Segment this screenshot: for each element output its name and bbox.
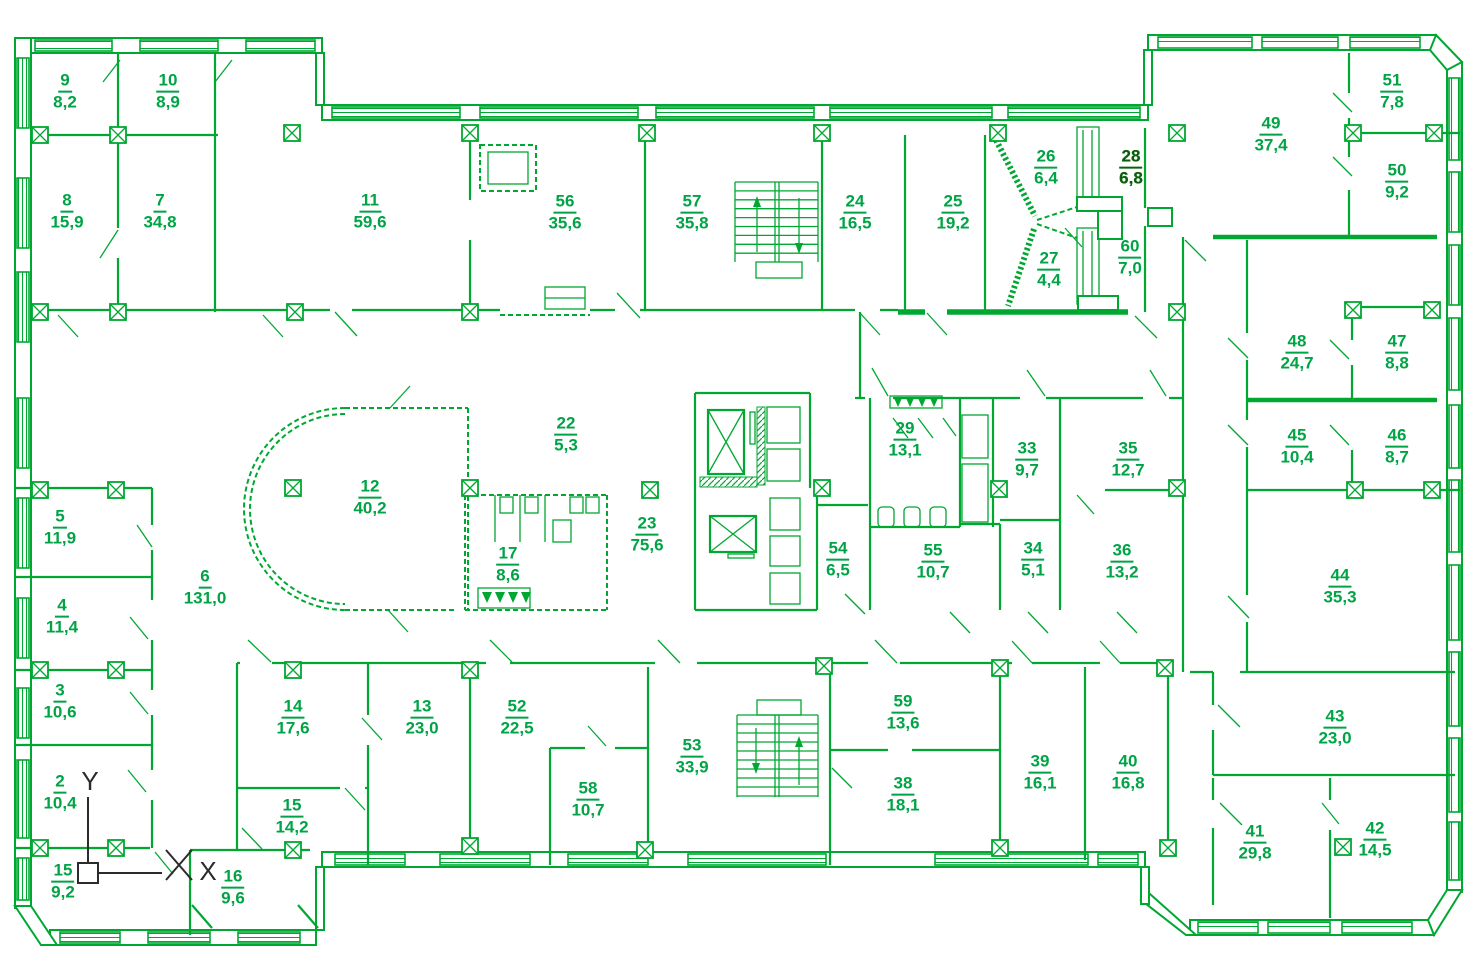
room-label-40: 4016,8 — [1111, 753, 1144, 794]
room-label-14: 1417,6 — [276, 698, 309, 739]
room-label-12: 1240,2 — [353, 478, 386, 519]
room-label-4: 411,4 — [46, 597, 78, 638]
room-label-42: 4214,5 — [1358, 820, 1391, 861]
room-label-6: 6131,0 — [184, 568, 227, 609]
room-label-24: 2416,5 — [838, 193, 871, 234]
room-label-15: 159,2 — [51, 862, 75, 903]
room-label-43: 4323,0 — [1318, 708, 1351, 749]
room-label-41: 4129,8 — [1238, 823, 1271, 864]
room-label-58: 5810,7 — [571, 780, 604, 821]
room-label-3: 310,6 — [43, 682, 76, 723]
room-label-11: 1159,6 — [353, 192, 386, 233]
room-label-54: 546,5 — [826, 540, 850, 581]
room-label-55: 5510,7 — [916, 542, 949, 583]
room-label-35: 3512,7 — [1111, 440, 1144, 481]
room-label-38: 3818,1 — [886, 775, 919, 816]
room-label-9: 98,2 — [53, 72, 77, 113]
room-label-10: 108,9 — [156, 72, 180, 113]
room-label-27: 274,4 — [1037, 250, 1061, 291]
room-label-48: 4824,7 — [1280, 333, 1313, 374]
room-label-29: 2913,1 — [888, 420, 921, 461]
room-label-13: 1323,0 — [405, 698, 438, 739]
room-label-22: 225,3 — [554, 415, 578, 456]
room-label-5: 511,9 — [44, 508, 76, 549]
room-label-44: 4435,3 — [1323, 567, 1356, 608]
room-label-23: 2375,6 — [630, 515, 663, 556]
room-label-56: 5635,6 — [548, 193, 581, 234]
room-label-36: 3613,2 — [1105, 542, 1138, 583]
room-label-34: 345,1 — [1021, 540, 1045, 581]
room-label-45: 4510,4 — [1280, 427, 1313, 468]
room-label-39: 3916,1 — [1023, 753, 1056, 794]
room-label-28: 286,8 — [1119, 148, 1143, 189]
room-label-7: 734,8 — [143, 192, 176, 233]
room-label-52: 5222,5 — [500, 698, 533, 739]
room-label-47: 478,8 — [1385, 333, 1409, 374]
room-label-49: 4937,4 — [1254, 115, 1287, 156]
room-label-8: 815,9 — [50, 192, 83, 233]
floor-plan-canvas: Y X 98,2108,9815,9734,81159,65635,65735,… — [0, 0, 1478, 974]
room-label-33: 339,7 — [1015, 440, 1039, 481]
room-label-51: 517,8 — [1380, 72, 1404, 113]
room-label-26: 266,4 — [1034, 148, 1058, 189]
room-label-46: 468,7 — [1385, 427, 1409, 468]
room-label-15: 1514,2 — [275, 797, 308, 838]
room-label-53: 5333,9 — [675, 737, 708, 778]
room-label-17: 178,6 — [496, 545, 520, 586]
room-label-59: 5913,6 — [886, 693, 919, 734]
room-label-16: 169,6 — [221, 868, 245, 909]
room-label-50: 509,2 — [1385, 162, 1409, 203]
room-labels-layer: 98,2108,9815,9734,81159,65635,65735,8241… — [0, 0, 1478, 974]
room-label-25: 2519,2 — [936, 193, 969, 234]
room-label-2: 210,4 — [43, 773, 76, 814]
room-label-60: 607,0 — [1118, 238, 1142, 279]
room-label-57: 5735,8 — [675, 193, 708, 234]
